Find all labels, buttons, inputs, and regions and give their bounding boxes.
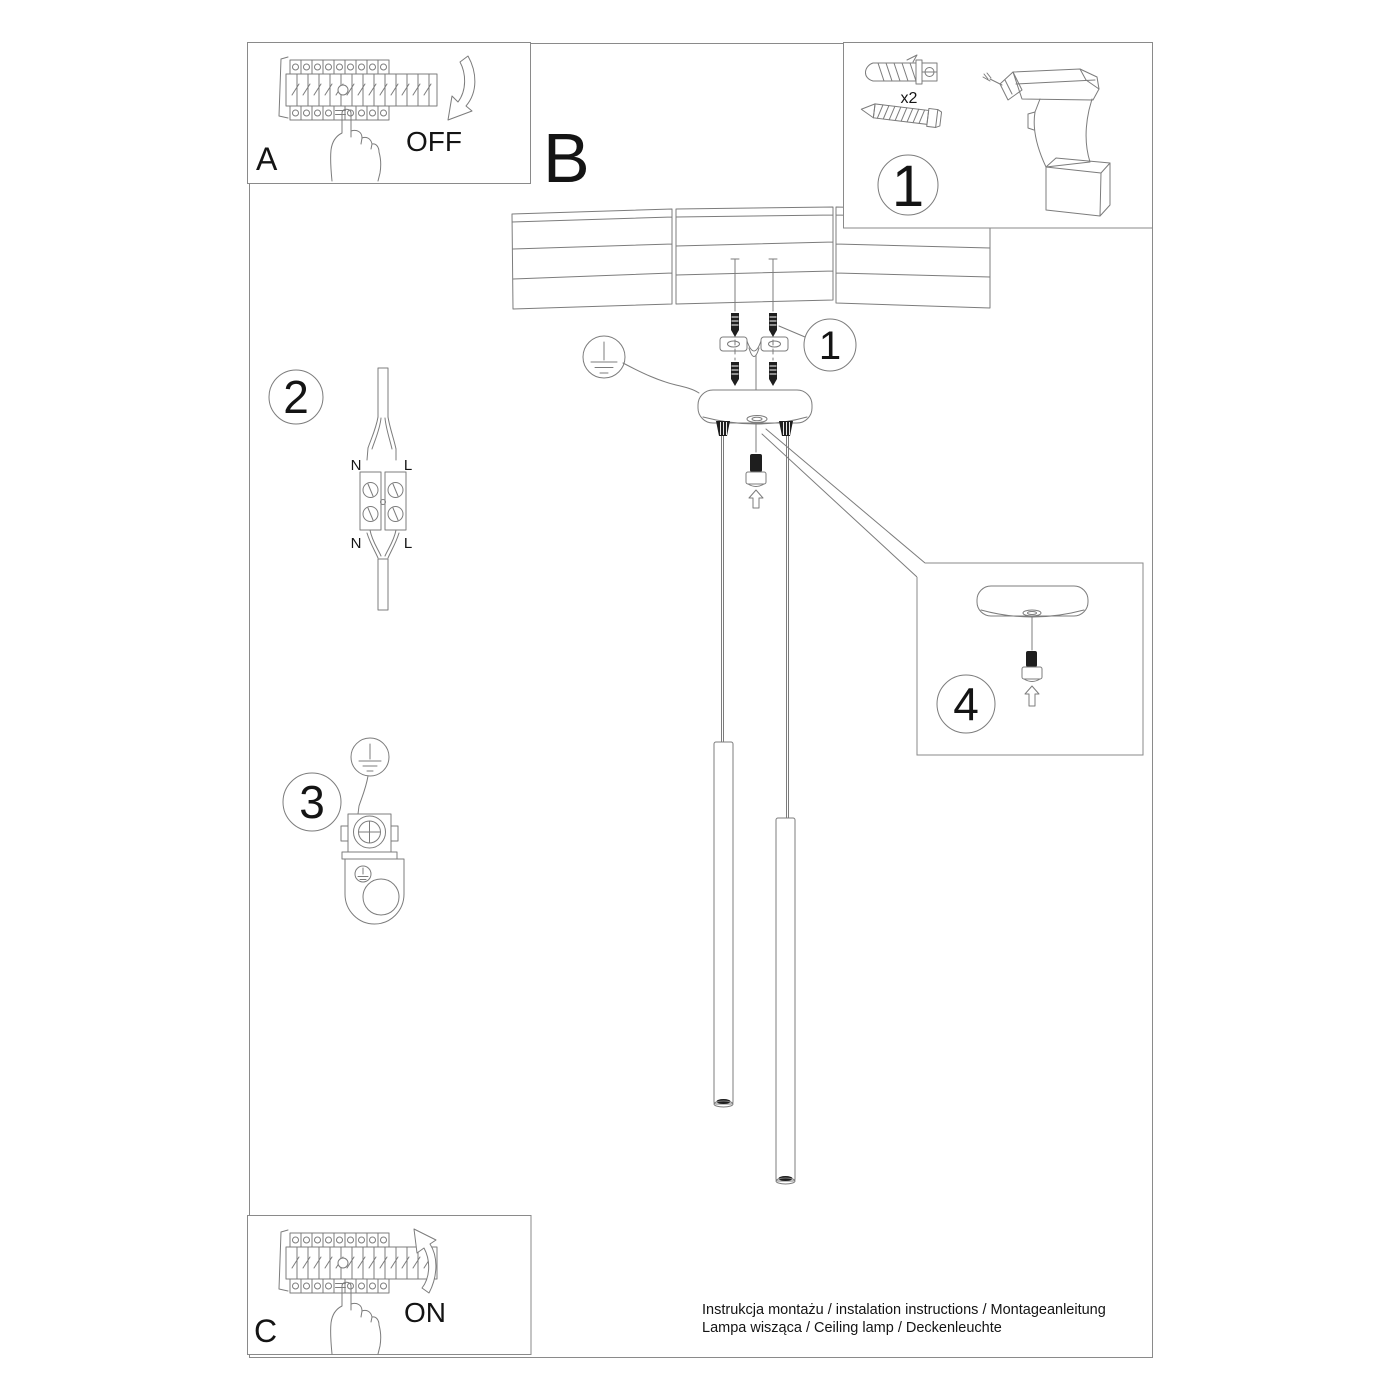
anchor-quantity: x2 <box>901 90 918 107</box>
pendant-tubes <box>714 742 795 1184</box>
terminal-label-l-top: L <box>404 457 412 474</box>
panel-a-label: A <box>256 141 278 177</box>
panel-c-state: ON <box>404 1297 446 1328</box>
footer-line2: Lampa wisząca / Ceiling lamp / Deckenleu… <box>702 1320 1002 1336</box>
step1-badge: 1 <box>779 319 856 371</box>
ground-symbol <box>583 336 625 378</box>
canopy <box>698 390 812 436</box>
terminal-label-n-bottom: N <box>351 535 362 552</box>
instruction-sheet: 1 <box>0 0 1400 1400</box>
cord-grip <box>716 421 730 436</box>
ground-wire <box>623 363 699 393</box>
parts-badge: 1 <box>892 154 924 219</box>
panel-c: C ON <box>248 1216 532 1355</box>
panel-a-state: OFF <box>406 126 462 157</box>
mounting-bracket <box>720 337 788 357</box>
arrow-up-icon <box>749 490 763 508</box>
step4-number: 4 <box>953 678 979 730</box>
panel-b-label: B <box>543 119 590 197</box>
step1-number: 1 <box>819 324 841 368</box>
cord-grip <box>779 421 793 436</box>
panel-c-label: C <box>254 1313 277 1349</box>
panel-a: A OFF <box>248 43 531 184</box>
panel-parts: x2 1 <box>844 43 1153 229</box>
step-wiring: 2 N L N L <box>269 368 412 610</box>
strain-relief-screw <box>746 424 766 508</box>
terminal-label-n-top: N <box>351 457 362 474</box>
step-grounding: 3 <box>283 738 404 924</box>
footer-line1: Instrukcja montażu / instalation instruc… <box>702 1302 1106 1318</box>
step2-number: 2 <box>283 371 309 423</box>
footer: Instrukcja montażu / instalation instruc… <box>702 1302 1106 1336</box>
panel-4: 4 <box>917 563 1143 755</box>
step3-number: 3 <box>299 776 325 828</box>
terminal-label-l-bottom: L <box>404 535 412 552</box>
